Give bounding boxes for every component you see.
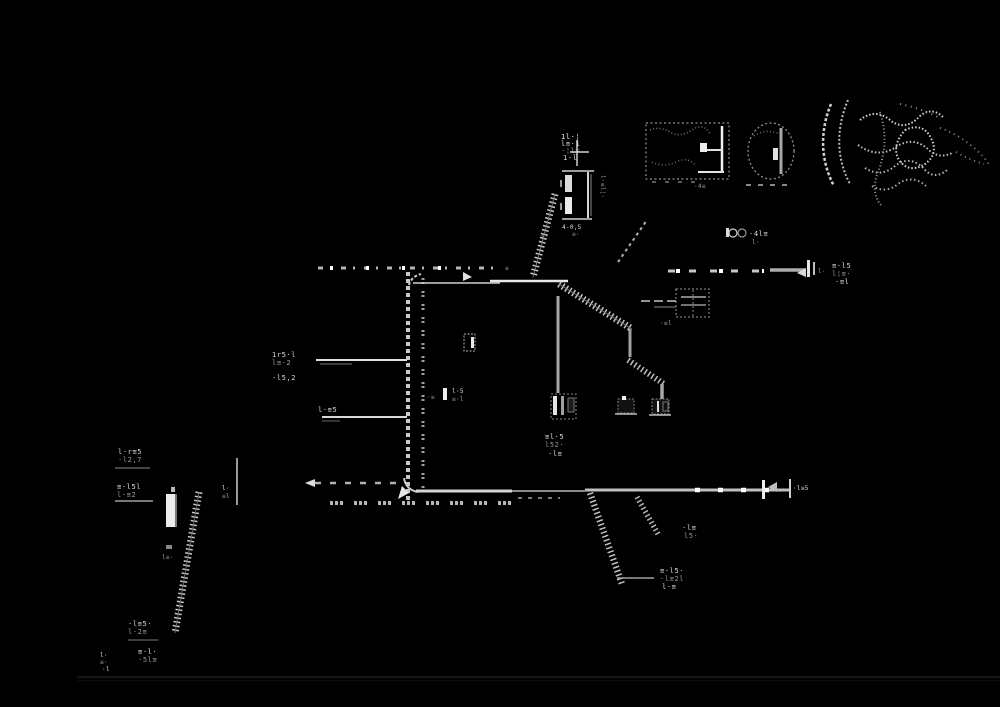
noise-label: l·	[818, 268, 826, 275]
noise-label: l5·	[684, 532, 698, 540]
noise-label: ·≡	[427, 394, 435, 401]
noise-label: l·r≡5	[118, 448, 142, 456]
noise-label: ·l≡5·	[128, 620, 152, 628]
noise-label: ≡l	[222, 493, 230, 500]
box-a-pad	[700, 143, 707, 152]
noise-label: l·5	[452, 388, 464, 395]
relay-pad-lower	[565, 197, 572, 214]
noise-label: ≡l·5	[545, 433, 564, 441]
page-background	[0, 0, 1000, 707]
noise-label: ≡·l	[452, 396, 464, 403]
noise-label: l·	[222, 485, 230, 492]
bl-white-bar	[166, 494, 175, 527]
noise-label: ≡·l5	[832, 262, 851, 270]
noise-label: l≡·2	[272, 359, 291, 367]
noise-label: ·4≡	[694, 183, 706, 190]
m2-outline	[618, 399, 634, 413]
schematic-canvas: ·≡ l·5 ≡·l 1r5·l l≡·2 ·l5,2 l·≡5 1l·¦ l≡…	[0, 0, 1000, 707]
bl-mid-tick	[166, 545, 172, 549]
component-m3	[649, 399, 671, 415]
noise-label: l·2≡	[128, 628, 147, 636]
noise-label: ·l5,2	[272, 374, 296, 382]
interior-fuse-pad	[471, 337, 474, 348]
m1-pad-a	[553, 396, 557, 415]
end-connector-bar-a	[762, 480, 765, 499]
m3-outline	[652, 399, 669, 414]
noise-label: l·≡2	[117, 491, 136, 499]
noise-label: ·l≡	[682, 524, 696, 532]
interior-contact-pad	[443, 388, 447, 400]
mid-connector-bar-a	[807, 260, 810, 277]
rule-line-a	[77, 676, 1000, 678]
noise-label: ·4l≡	[749, 230, 768, 238]
rule-line-b	[77, 680, 1000, 681]
noise-label: l≡·	[162, 554, 174, 561]
noise-label: 1r5·l	[272, 351, 296, 359]
noise-label: l52·	[545, 441, 564, 449]
noise-label: ·≡l	[835, 278, 849, 286]
component-m2	[615, 396, 637, 414]
relay-tick-upper	[560, 180, 562, 187]
bl-white-bar-shadow	[175, 494, 177, 527]
schematic-scan-page: ·≡ l·5 ≡·l 1r5·l l≡·2 ·l5,2 l·≡5 1l·¦ l≡…	[0, 0, 1000, 707]
mid-connector-bar-b	[813, 262, 815, 275]
noise-label: ≡·	[100, 659, 108, 666]
noise-label-vertical: l·≡l¦·	[599, 175, 606, 198]
m3-pad	[657, 401, 659, 412]
m1-pad-b	[561, 396, 564, 415]
noise-label: l·	[752, 239, 760, 246]
noise-label: ≡·	[572, 231, 580, 238]
m2-dot	[622, 396, 626, 400]
m1-slot	[568, 398, 574, 412]
noise-label: ·l≡2l	[660, 575, 684, 583]
noise-label: ·l2,7	[118, 456, 142, 464]
box-b-pad	[773, 148, 778, 160]
noise-label: ·≡l	[660, 320, 672, 327]
noise-label: l·	[100, 652, 108, 659]
noise-label: ≡·l·	[138, 648, 157, 656]
noise-label: ≡·l5l	[117, 483, 141, 491]
relay-pad-upper	[565, 175, 572, 192]
noise-label: l¦≡·	[832, 270, 851, 278]
noise-label: ·l	[102, 666, 110, 673]
noise-label: ·5l≡	[138, 656, 157, 664]
noise-label: ≡	[505, 265, 509, 272]
relay-tick-lower	[560, 203, 562, 210]
noise-label: ≡·l5·	[660, 567, 684, 575]
end-connector-bar-b	[789, 479, 791, 498]
pair-tick	[726, 228, 729, 237]
noise-label: l·≡5	[318, 406, 337, 414]
noise-label: l·≡	[662, 583, 676, 591]
noise-label: ·l≡	[548, 450, 562, 458]
noise-label: 1·l	[563, 154, 577, 162]
noise-label: ·l≡5	[793, 485, 809, 492]
bl-bar-tick	[171, 487, 175, 492]
noise-label: 4-0,5	[562, 224, 582, 231]
